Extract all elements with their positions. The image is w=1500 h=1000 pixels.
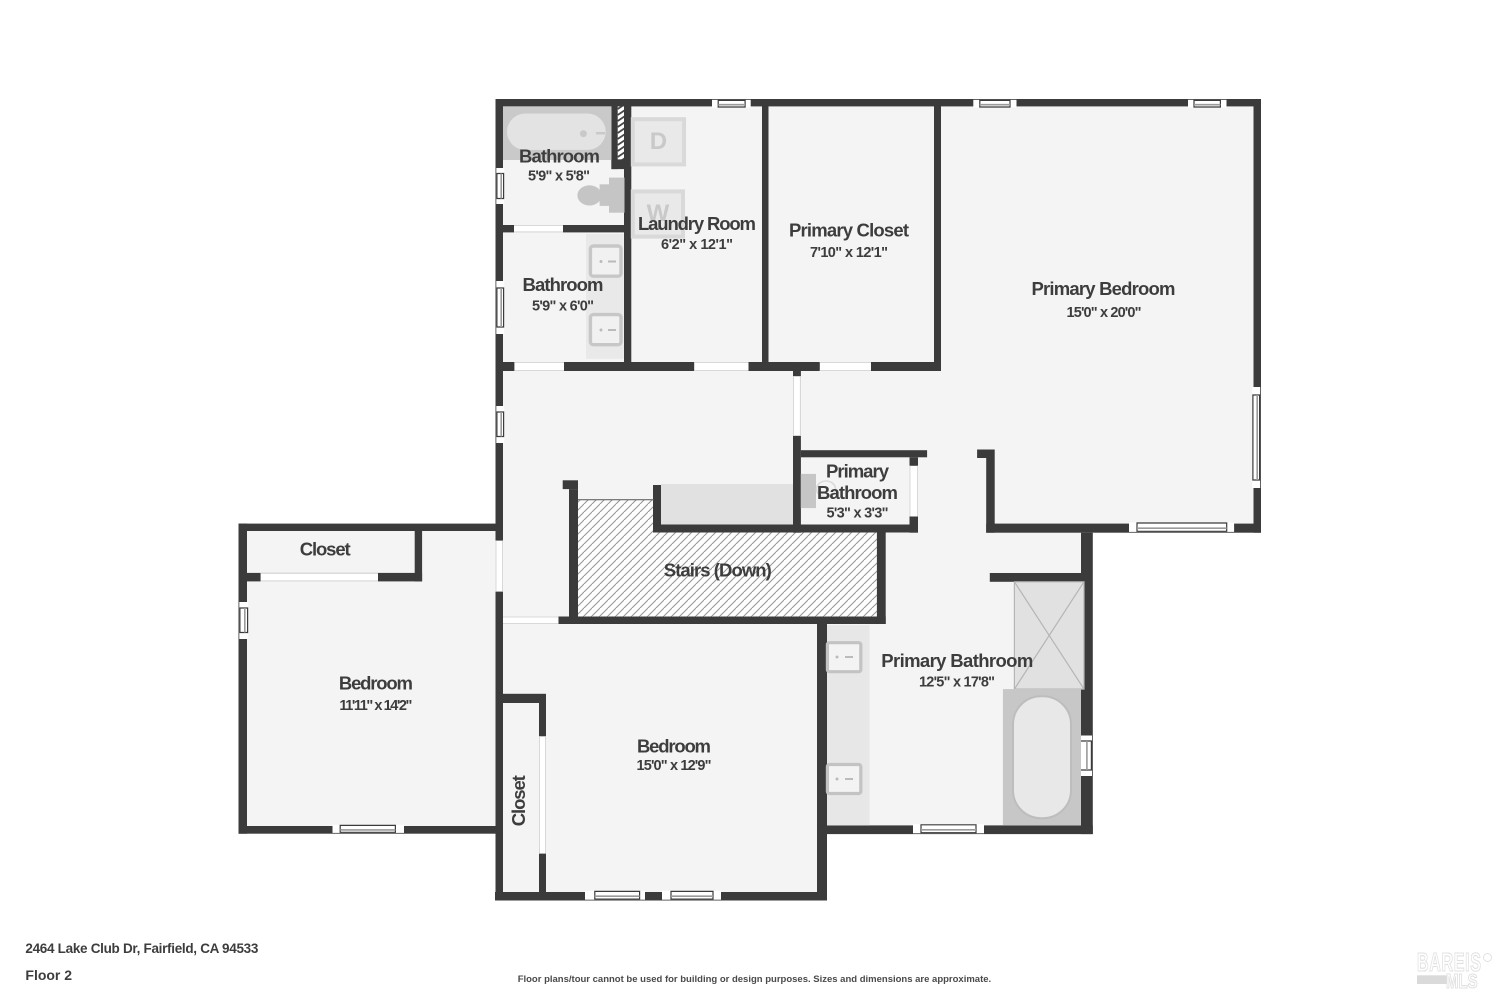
svg-text:2464 Lake Club Dr, Fairfield,: 2464 Lake Club Dr, Fairfield, CA 94533 xyxy=(25,941,258,956)
svg-text:Floor 2: Floor 2 xyxy=(25,967,72,983)
svg-text:MLS: MLS xyxy=(1446,970,1478,993)
svg-text:Primary Bedroom: Primary Bedroom xyxy=(1032,278,1176,299)
svg-text:Laundry Room: Laundry Room xyxy=(638,213,756,234)
svg-text:D: D xyxy=(650,128,667,155)
svg-text:5'9" x 5'8": 5'9" x 5'8" xyxy=(528,169,590,185)
svg-text:Primary Closet: Primary Closet xyxy=(789,220,909,241)
svg-text:Floor plans/tour cannot be use: Floor plans/tour cannot be used for buil… xyxy=(518,974,992,985)
svg-text:Bathroom: Bathroom xyxy=(519,145,600,166)
svg-text:7'10" x 12'1": 7'10" x 12'1" xyxy=(810,245,888,261)
svg-text:Bedroom: Bedroom xyxy=(339,673,413,694)
svg-text:5'9" x 6'0": 5'9" x 6'0" xyxy=(532,299,594,315)
svg-text:6'2" x 12'1": 6'2" x 12'1" xyxy=(661,237,733,253)
svg-text:Stairs (Down): Stairs (Down) xyxy=(664,560,772,581)
svg-text:12'5" x 17'8": 12'5" x 17'8" xyxy=(919,674,995,690)
svg-text:Closet: Closet xyxy=(300,539,351,560)
svg-text:Bathroom: Bathroom xyxy=(817,482,898,503)
svg-text:15'0" x 20'0": 15'0" x 20'0" xyxy=(1067,305,1142,321)
svg-text:Bedroom: Bedroom xyxy=(637,736,711,757)
svg-text:Closet: Closet xyxy=(508,775,529,826)
svg-text:Bathroom: Bathroom xyxy=(523,274,604,295)
svg-text:Primary: Primary xyxy=(826,460,890,481)
svg-text:5'3" x 3'3": 5'3" x 3'3" xyxy=(827,506,889,522)
svg-text:15'0" x 12'9": 15'0" x 12'9" xyxy=(637,758,712,774)
svg-text:Primary Bathroom: Primary Bathroom xyxy=(881,650,1033,671)
svg-text:11'11" x 14'2": 11'11" x 14'2" xyxy=(339,698,412,714)
